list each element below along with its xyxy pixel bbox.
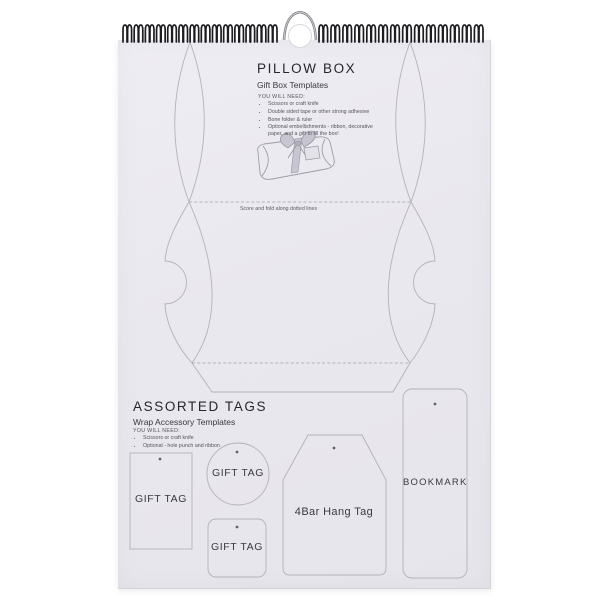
pillow-box-needs-heading: YOU WILL NEED: [258, 94, 305, 100]
gift-tag-rect-label: GIFT TAG [130, 493, 192, 505]
binding-loop [379, 25, 388, 42]
needs-item: Bone folder & ruler [268, 117, 376, 124]
binding-loop [246, 25, 255, 42]
fold-note: Score and fold along dotted lines [240, 206, 317, 212]
binding-loop [257, 25, 266, 42]
needs-item: Double sided tape or other strong adhesi… [268, 109, 376, 116]
needs-item: Scissors or craft knife [268, 101, 376, 108]
binding-loop [367, 25, 376, 42]
gift-tag-circle-label: GIFT TAG [207, 467, 269, 479]
binding-loop [343, 25, 352, 42]
binding-loop [212, 25, 221, 42]
binding-loop [224, 25, 233, 42]
gift-tag-square-label: GIFT TAG [206, 541, 268, 553]
needs-item: Scissors or craft knife [143, 435, 263, 442]
binding-loop [462, 25, 471, 42]
binding-loop [450, 25, 459, 42]
needs-item: Optional embellishments - ribbon, decora… [268, 124, 376, 138]
binding-loop [134, 25, 143, 42]
binding-loop [439, 25, 448, 42]
pillow-box-subtitle: Gift Box Templates [257, 80, 328, 90]
binding-loop [391, 25, 400, 42]
binding-loop [168, 25, 177, 42]
binding-loops [123, 25, 483, 42]
binding-loop [355, 25, 364, 42]
bookmark-label: BOOKMARK [403, 477, 467, 488]
binding-loop [235, 25, 244, 42]
binding-loop [427, 25, 436, 42]
binding-loop [319, 25, 328, 42]
pillow-box-title: PILLOW BOX [257, 61, 356, 76]
binding-loop [331, 25, 340, 42]
binding-loop [157, 25, 166, 42]
assorted-tags-title: ASSORTED TAGS [133, 399, 267, 414]
assorted-tags-subtitle: Wrap Accessory Templates [133, 417, 235, 427]
binding-loop [415, 25, 424, 42]
binding-loop [145, 25, 154, 42]
hanger-hook-icon [284, 12, 316, 40]
hang-tag-label: 4Bar Hang Tag [282, 506, 386, 518]
needs-item: Optional - hole punch and ribbon [143, 443, 263, 450]
binding-loop [179, 25, 188, 42]
assorted-tags-needs-list: Scissors or craft knife Optional - hole … [136, 435, 263, 451]
pillow-box-needs-list: Scissors or craft knife Double sided tap… [261, 101, 376, 139]
hanger-hook-highlight [284, 12, 316, 40]
binding-loop [201, 25, 210, 42]
binding-loop [474, 25, 483, 42]
binding-loop [190, 25, 199, 42]
assorted-tags-needs-heading: YOU WILL NEED: [133, 428, 180, 434]
binding-loop [123, 25, 132, 42]
product-photo-stage: PILLOW BOX Gift Box Templates YOU WILL N… [0, 0, 600, 600]
binding-loop [403, 25, 412, 42]
binding-loop [268, 25, 277, 42]
